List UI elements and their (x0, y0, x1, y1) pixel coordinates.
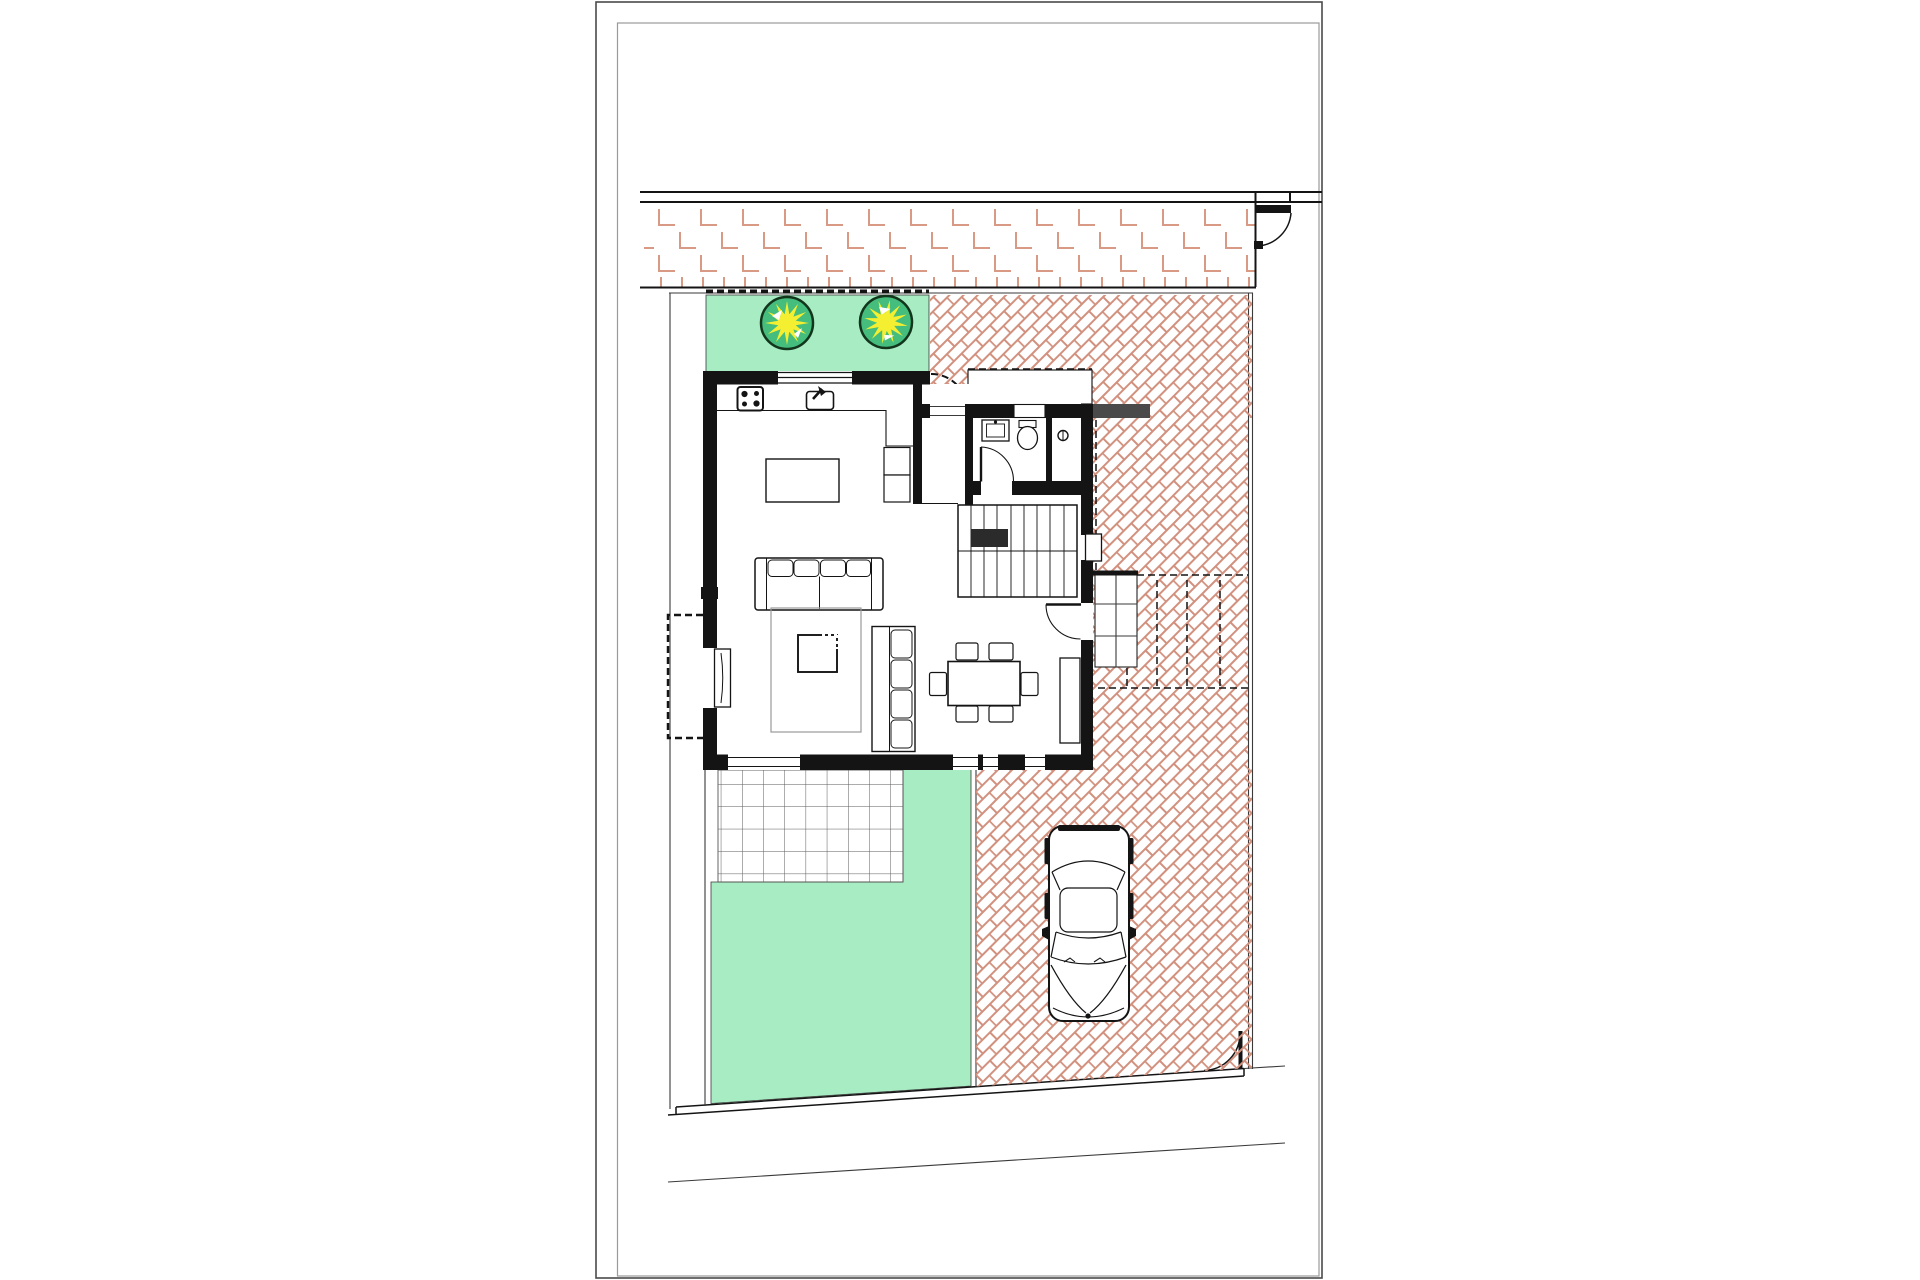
stove (738, 387, 764, 411)
dining-chair (956, 706, 978, 722)
washbasin (982, 420, 1009, 441)
sidewalk-tick-row (644, 276, 1256, 287)
side-window-right (1081, 534, 1102, 561)
dining-table (948, 662, 1020, 706)
dining-chair (930, 673, 947, 696)
stair-cut-mark (971, 529, 1008, 547)
kitchen-window (778, 371, 852, 385)
shower (1058, 431, 1068, 441)
dining-chair (956, 643, 978, 660)
sofa (755, 558, 883, 610)
tiled-patio (718, 770, 903, 882)
dining-chair (989, 706, 1013, 722)
tall-cabinets (884, 448, 910, 503)
staircase (958, 505, 1077, 597)
kitchen-island (766, 459, 839, 502)
house (701, 371, 1102, 770)
floor-plan-drawing (0, 0, 1920, 1280)
entry-steps (1092, 571, 1138, 668)
sidewalk-brick-field (644, 206, 1256, 276)
side-window-left (703, 648, 731, 708)
garden-wall-stub (1093, 404, 1150, 418)
coffee-table (798, 635, 837, 672)
dining-chair (1021, 673, 1038, 696)
sideboard (1060, 658, 1080, 743)
car-roof (1060, 888, 1117, 932)
brick-sidewalk (640, 192, 1322, 293)
site-plan-sheet (0, 0, 1920, 1280)
dining-chair (989, 643, 1013, 660)
parked-car (1042, 825, 1136, 1021)
toilet (1018, 421, 1038, 450)
car-rear-bar (1058, 825, 1120, 831)
tree (761, 297, 813, 349)
armchair (872, 627, 915, 752)
cistern-box (1014, 405, 1045, 418)
